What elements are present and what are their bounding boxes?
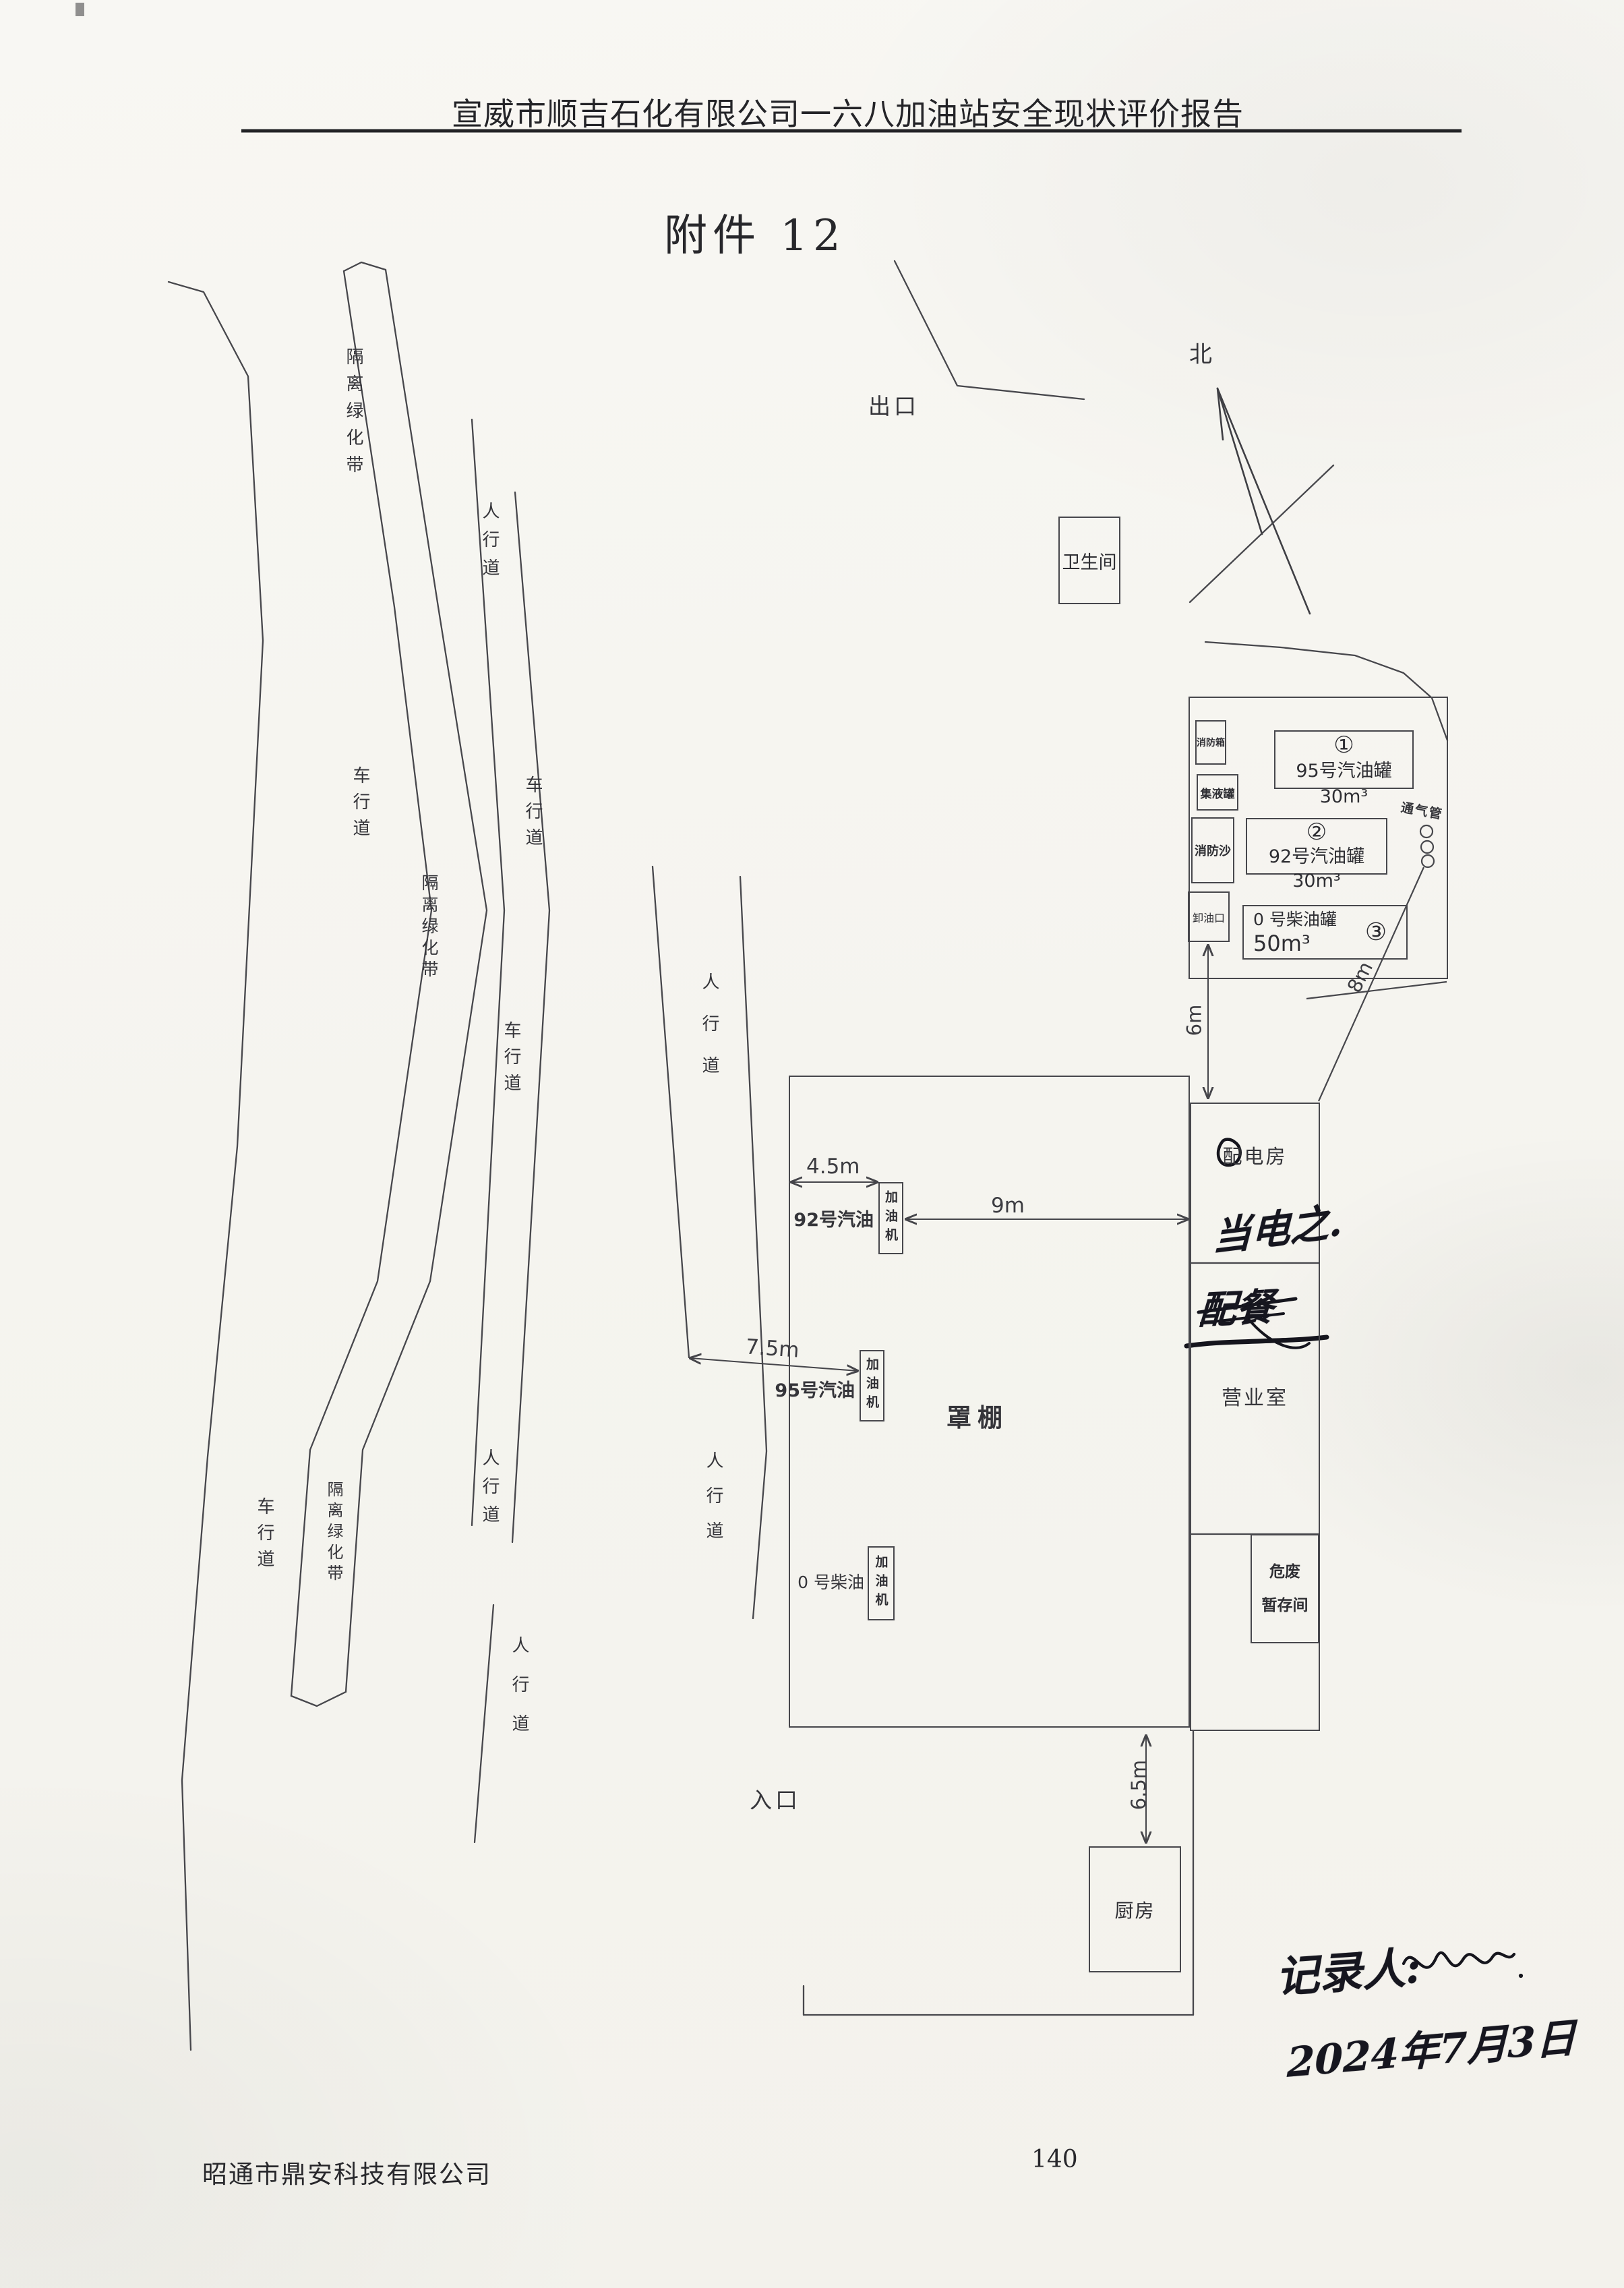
tank-2-box: ② 92号汽油罐 30m³ [1246,818,1387,875]
dispenser-3-box: 加油机 [868,1546,895,1620]
exit-label: 出口 [868,388,920,421]
green-belt-label-2: 隔离绿化带 [417,874,441,982]
walkway-line-1 [653,867,689,1357]
green-belt-top-cap [344,262,386,271]
tank-3-box: 0 号柴油罐 50m³ ③ [1242,905,1408,960]
restroom-box: 卫生间 [1058,517,1120,604]
restroom-label: 卫生间 [1062,548,1117,574]
lane-label-4: 车行道 [252,1497,277,1576]
page-header-title: 宣威市顺吉石化有限公司一六八加油站安全现状评价报告 [438,90,1257,134]
dispenser-2-machine-label: 加油机 [863,1357,881,1414]
exit-road-line [895,261,1084,399]
green-belt-bottom-cap [291,1692,346,1706]
sidewalk-label-4: 人行道 [701,1451,726,1556]
north-label: 北 [1189,336,1212,369]
fire-cabinet-box: 消防箱 [1195,720,1226,765]
green-belt-label-1: 隔离绿化带 [341,347,366,482]
dispenser-2-box: 加油机 [860,1350,884,1421]
canopy-label: 罩棚 [946,1397,1009,1434]
tank-1-box: ① 95号汽油罐 30m³ [1274,730,1414,789]
scan-speck [76,3,84,16]
sidewalk-label-3: 人行道 [477,1448,502,1533]
tank-1-label: 95号汽油罐 30m³ [1275,759,1412,810]
corner-tie-line [1306,982,1447,999]
recorder-label: 记录人: [1273,1933,1423,2005]
hazwaste-label-line2: 暂存间 [1252,1592,1318,1615]
fire-sand-box: 消防沙 [1191,817,1234,883]
unload-port-label: 卸油口 [1193,909,1225,925]
hazwaste-room-box: 危废 暂存间 [1251,1534,1319,1643]
attachment-title: 附件 12 [664,201,846,263]
sidewalk-line-2 [512,492,549,1542]
kitchen-label: 厨房 [1114,1896,1155,1923]
footer-page-number: 140 [1031,2146,1078,2173]
fire-cabinet-label: 消防箱 [1197,736,1225,749]
green-belt-left-line [291,271,431,1696]
dispenser-3-fuel-label: 0 号柴油 [793,1569,864,1593]
lane-label-2: 车行道 [520,775,545,854]
signature-dot [1519,1974,1522,1977]
collect-tank-label: 集液罐 [1201,784,1235,801]
power-room-label: 配电房 [1190,1141,1320,1169]
tank-3-label-line2: 50m³ [1253,931,1337,956]
tank-1-number: ① [1275,732,1412,759]
unload-port-box: 卸油口 [1188,891,1230,942]
entrance-label: 入口 [750,1782,801,1815]
dispenser-2-fuel-label: 95号汽油 [769,1376,855,1402]
handwritten-note-2-struck: 配餐 [1197,1277,1275,1335]
kitchen-box: 厨房 [1089,1846,1181,1972]
lane-label-3: 车行道 [499,1021,524,1100]
walkway-line-2 [740,877,766,1618]
footer-company: 昭通市鼎安科技有限公司 [202,2154,491,2190]
dispenser-3-machine-label: 加油机 [872,1555,891,1612]
dim-6m: 6m [1182,1005,1205,1036]
tank-3-label-line1: 0 号柴油罐 [1253,909,1337,931]
fire-sand-label: 消防沙 [1195,842,1231,859]
business-room-label: 营业室 [1190,1381,1320,1411]
tank-3-number: ③ [1365,918,1387,946]
lane-label-1: 车行道 [348,766,373,845]
left-curb-line [169,282,263,2050]
sidewalk-line-lower [475,1605,493,1842]
green-belt-label-3: 隔离绿化带 [322,1481,346,1585]
sidewalk-label-2: 人行道 [697,972,722,1098]
tank-2-label: 92号汽油罐 30m³ [1247,845,1386,893]
tank-2-number: ② [1247,819,1386,845]
sidewalk-label-1: 人行道 [477,502,502,587]
hazwaste-label-line1: 危废 [1252,1558,1318,1581]
collect-tank-box: 集液罐 [1197,774,1238,811]
dim-6-5m: 6.5m [1127,1760,1150,1810]
dispenser-1-fuel-label: 92号汽油 [789,1205,874,1231]
scanned-report-page: { "page": { "header_title": "宣威市顺吉石化有限公司… [0,0,1624,2288]
dispenser-1-box: 加油机 [878,1182,903,1254]
sidewalk-label-5: 人行道 [507,1636,532,1753]
dispenser-1-machine-label: 加油机 [882,1190,900,1247]
